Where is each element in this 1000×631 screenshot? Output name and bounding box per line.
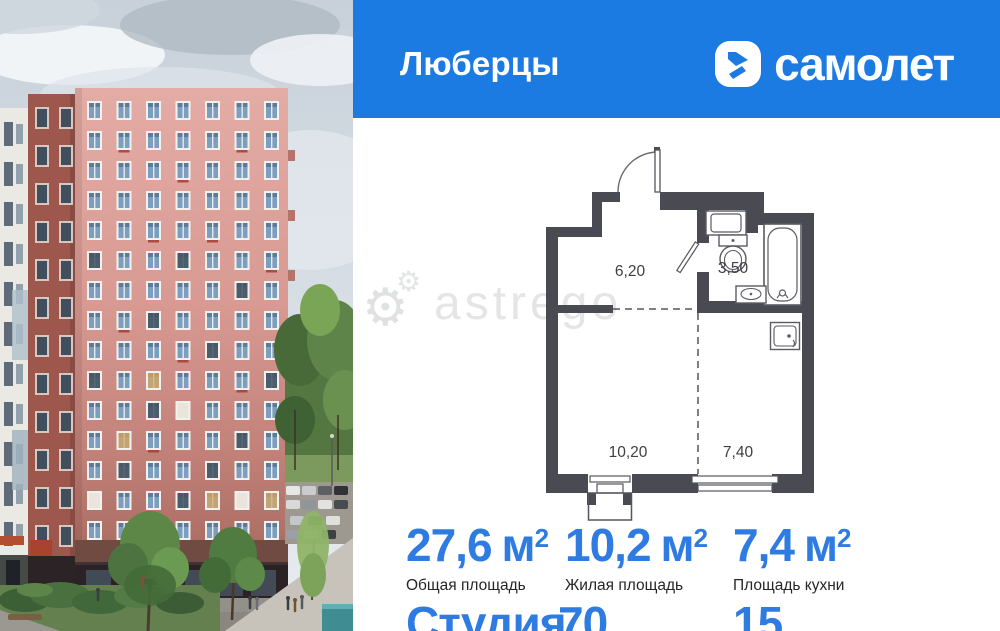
stat-label: Общая площадь: [406, 577, 548, 595]
header: Люберцы самолет: [353, 0, 1000, 118]
stat-value: 27,6м2: [406, 522, 548, 568]
building-photo: [0, 0, 353, 631]
project-title: Люберцы: [400, 45, 560, 83]
stat-living-area: 10,2м2 Жилая площадь: [565, 522, 707, 595]
stat-label: Площадь кухни: [733, 577, 850, 595]
stat-unit: м2: [502, 519, 549, 571]
stat-value: 10,2м2: [565, 522, 707, 568]
stat-label: Жилая площадь: [565, 577, 707, 595]
stat-number: 27,6: [406, 519, 492, 571]
stat-total-area: 27,6м2 Общая площадь: [406, 522, 548, 595]
listing-card: ⚙ ⚙ astrego: [0, 0, 1000, 631]
stat-number: 10,2: [565, 519, 651, 571]
room-area-living-room: 10,20: [609, 444, 648, 461]
brand-logo: самолет: [715, 37, 954, 91]
stat-kitchen-area: 7,4м2 Площадь кухни: [733, 522, 850, 595]
samolet-logo-icon: [715, 41, 761, 87]
stat-number: 7,4: [733, 519, 794, 571]
gear-icon: ⚙: [362, 282, 409, 334]
room-area-kitchen: 7,40: [723, 444, 754, 461]
stat-unit: м2: [661, 519, 708, 571]
floor-plan: 6,20 3,50 10,20 7,40: [540, 135, 820, 535]
gear-small-icon: ⚙: [396, 268, 421, 296]
building-photo-art: [0, 0, 353, 631]
bottom-stat-type: Студия: [406, 600, 566, 631]
room-area-hallway: 6,20: [615, 263, 646, 280]
stat-value: 7,4м2: [733, 522, 850, 568]
floor-plan-drawing: 6,20 3,50 10,20 7,40: [540, 135, 820, 535]
bottom-stat-floor: 70: [558, 600, 607, 631]
bottom-stat-floors: 15: [733, 600, 782, 631]
stat-unit: м2: [804, 519, 851, 571]
room-area-bathroom: 3,50: [718, 260, 749, 277]
brand-name: самолет: [774, 37, 954, 91]
